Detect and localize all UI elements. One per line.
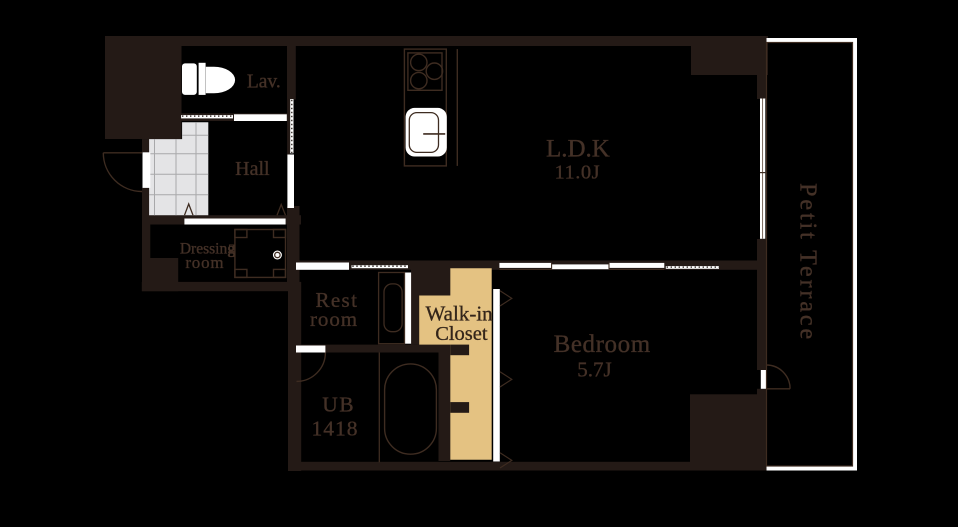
svg-text:Bedroom: Bedroom xyxy=(554,331,651,358)
svg-text:Lav.: Lav. xyxy=(247,72,281,93)
svg-text:room: room xyxy=(185,253,224,272)
svg-text:UB: UB xyxy=(322,393,355,417)
svg-text:1418: 1418 xyxy=(312,417,359,441)
svg-text:Petit Terrace: Petit Terrace xyxy=(794,183,820,342)
svg-text:L.D.K: L.D.K xyxy=(546,136,610,163)
svg-text:room: room xyxy=(310,307,358,331)
svg-text:11.0J: 11.0J xyxy=(555,162,601,184)
svg-text:Hall: Hall xyxy=(235,158,270,180)
svg-text:5.7J: 5.7J xyxy=(577,357,611,381)
svg-text:Closet: Closet xyxy=(435,323,488,345)
